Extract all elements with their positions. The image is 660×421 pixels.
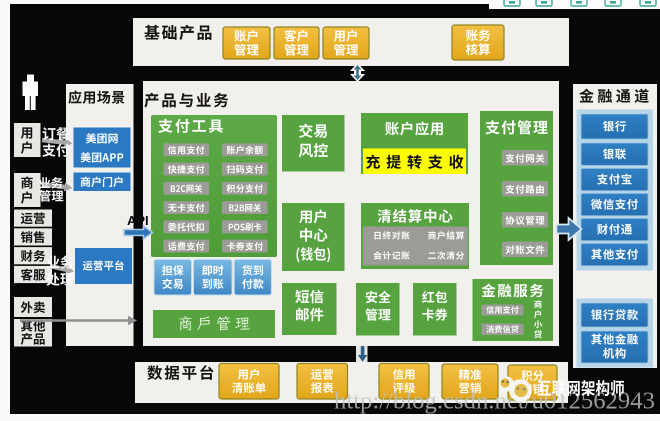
svg-text:API: API — [127, 213, 149, 228]
